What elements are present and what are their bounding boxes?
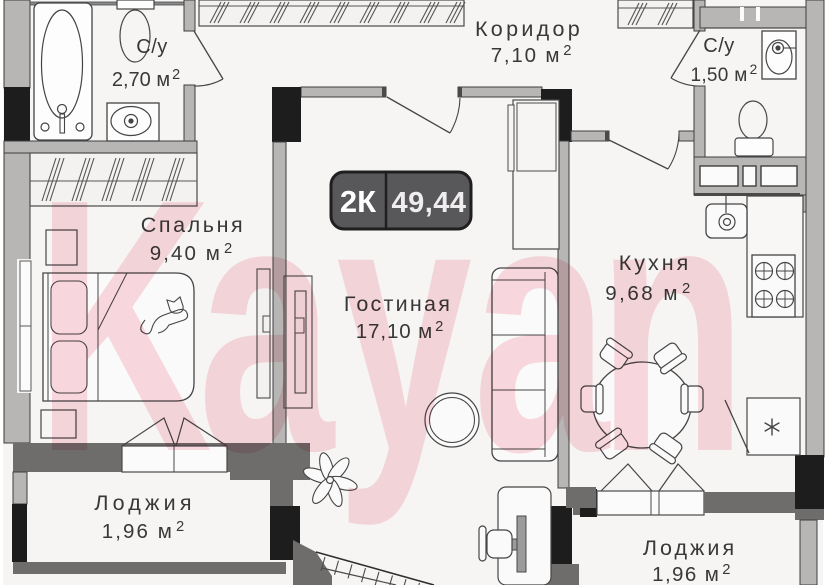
svg-text:a: a — [198, 125, 336, 527]
svg-text:y: y — [336, 125, 474, 529]
svg-text:n: n — [597, 125, 747, 527]
svg-text:K: K — [36, 125, 213, 527]
svg-text:a: a — [473, 125, 611, 527]
